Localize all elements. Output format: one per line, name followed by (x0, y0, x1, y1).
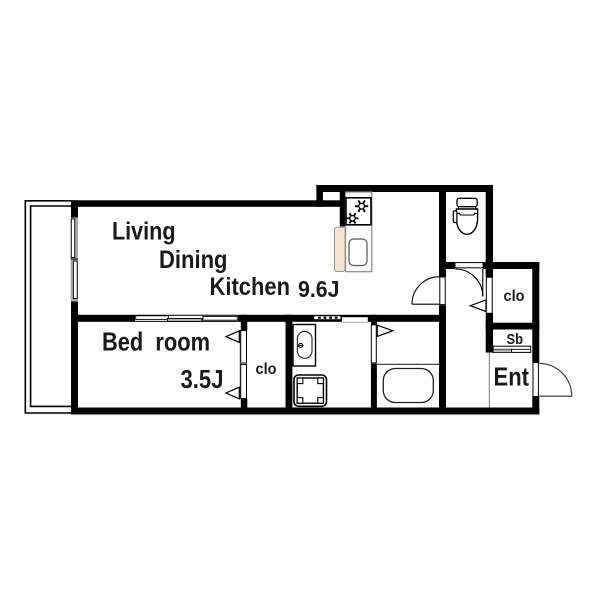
svg-text:3.5J: 3.5J (181, 364, 224, 394)
svg-text:Ent: Ent (494, 362, 530, 392)
svg-text:clo: clo (504, 288, 525, 305)
svg-text:clo: clo (256, 361, 277, 378)
svg-text:Bed room: Bed room (102, 327, 210, 357)
svg-text:9.6J: 9.6J (298, 276, 340, 302)
svg-text:Sb: Sb (507, 332, 524, 348)
svg-text:Dining: Dining (159, 246, 228, 274)
svg-text:Living: Living (112, 218, 176, 246)
svg-text:Kitchen: Kitchen (210, 273, 291, 301)
